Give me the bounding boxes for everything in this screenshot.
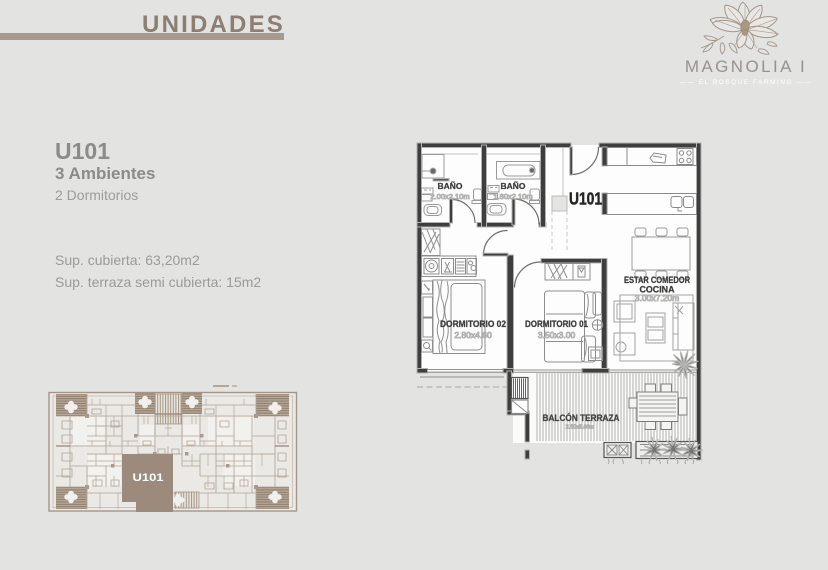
svg-text:2.00x2.10m: 2.00x2.10m [430,192,469,201]
svg-text:DORMITORIO 01: DORMITORIO 01 [525,319,589,330]
svg-text:2.80x4.60: 2.80x4.60 [454,330,492,340]
svg-text:U101: U101 [569,189,602,209]
svg-text:3.00x7.20m: 3.00x7.20m [635,293,679,303]
svg-text:U101: U101 [133,472,164,484]
svg-text:BAÑO: BAÑO [437,181,462,191]
svg-text:BAÑO: BAÑO [500,181,525,191]
svg-text:1.80x2.10m: 1.80x2.10m [493,192,532,201]
svg-text:DORMITORIO 02: DORMITORIO 02 [440,319,506,330]
svg-text:BALCÓN TERRAZA: BALCÓN TERRAZA [543,412,620,423]
svg-text:3.50x3.00: 3.50x3.00 [538,330,576,340]
svg-text:2.30x5.60m: 2.30x5.60m [566,425,595,431]
